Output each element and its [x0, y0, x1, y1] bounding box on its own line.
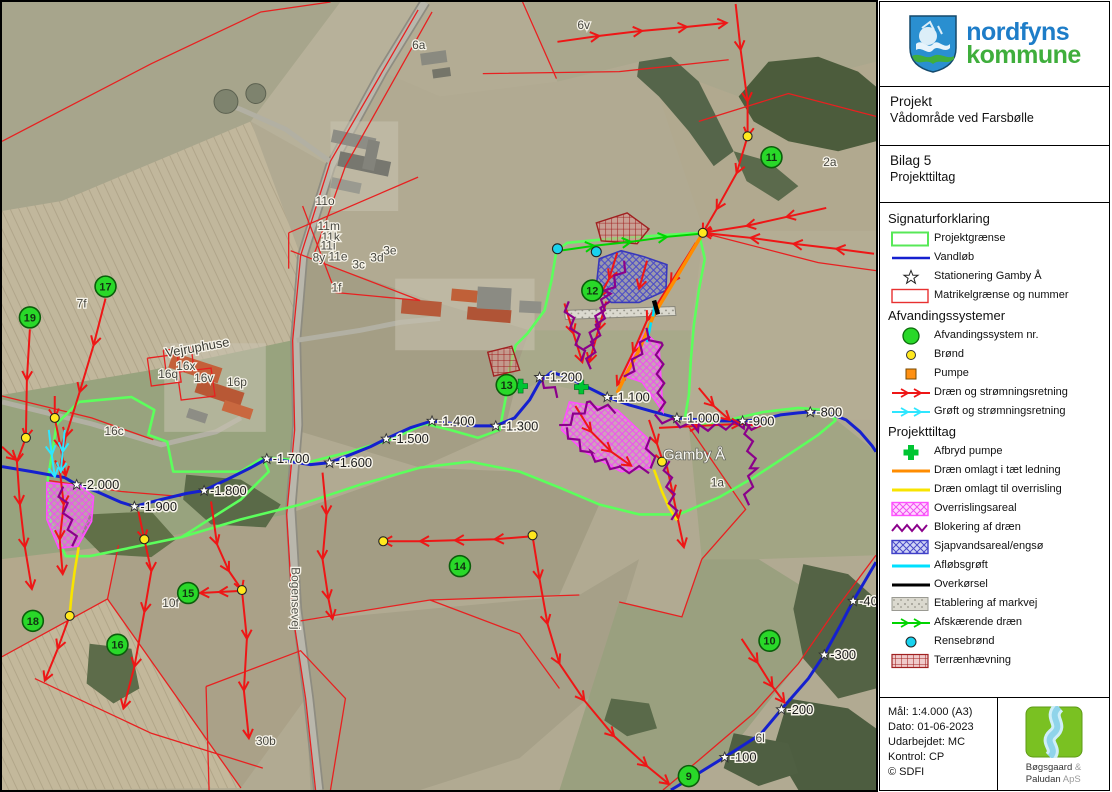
parcel-label: 1f	[331, 281, 342, 295]
station-label: -1.600	[335, 455, 372, 470]
municipality-coat-of-arms-icon	[908, 14, 958, 74]
drainage-system-number: 11	[766, 152, 778, 164]
parcel-label: 3e	[383, 244, 397, 258]
consultant-name: Bøgsgaard & Paludan ApS	[1026, 762, 1081, 786]
legend-item-label: Dræn omlagt i tæt ledning	[934, 464, 1061, 476]
legend-item-label: Etablering af markvej	[934, 597, 1037, 609]
station-label: -1.000	[683, 410, 720, 425]
station-label: -400	[859, 593, 876, 608]
legend-swatch-hatch-blue	[889, 538, 933, 556]
drainage-system-number: 10	[763, 636, 775, 648]
station-label: -300	[830, 647, 856, 662]
consultant-logo-box: Bøgsgaard & Paludan ApS	[998, 698, 1109, 790]
station-label: -1.100	[613, 389, 650, 404]
parcel-label: 6l	[756, 731, 765, 745]
bilag-box: Bilag 5 Projekttiltag	[879, 145, 1110, 203]
logo-line2: kommune	[966, 44, 1081, 67]
well-marker	[528, 531, 537, 540]
parcel-label: 6v	[577, 18, 590, 32]
legend-item-label: Stationering Gamby Å	[934, 270, 1042, 282]
legend-swatch-rect-outline-green	[889, 230, 933, 248]
legend-item: Dræn og strømningsretning	[888, 383, 1101, 402]
well-marker	[65, 611, 74, 620]
drainage-system-number: 16	[111, 640, 123, 652]
parcel-label: 16c	[105, 424, 124, 438]
legend-item: Overkørsel	[888, 575, 1101, 594]
legend-item: Matrikelgrænse og nummer	[888, 286, 1101, 305]
legend-swatch-arrow-green	[889, 614, 933, 632]
parcel-label: 3c	[352, 258, 365, 272]
drainage-system-number: 9	[686, 771, 692, 783]
parcel-label: 7f	[77, 296, 88, 310]
legend-item-label: Terrænhævning	[934, 654, 1011, 666]
parcel-label: 30b	[256, 734, 276, 748]
legend-item: Stationering Gamby Å	[888, 267, 1101, 286]
well-marker	[237, 586, 246, 595]
legend-item-label: Afløbsgrøft	[934, 559, 988, 571]
legend-swatch-plus-green	[889, 443, 933, 461]
metadata-line: © SDFI	[888, 766, 991, 778]
legend-swatch-line-orange	[889, 462, 933, 480]
legend-item: Afløbsgrøft	[888, 556, 1101, 575]
cleaning-well-marker	[552, 244, 562, 254]
title-panel: nordfyns kommune Projekt Vådområde ved F…	[878, 0, 1112, 792]
map-sheet: -2.000-1.900-1.800-1.700-1.600-1.500-1.4…	[0, 0, 1112, 792]
legend-item: Projektgrænse	[888, 229, 1101, 248]
info-box: Mål: 1:4.000 (A3)Dato: 01-06-2023Udarbej…	[879, 697, 1110, 791]
municipality-logo-text: nordfyns kommune	[966, 21, 1081, 67]
well-marker	[743, 132, 752, 141]
drainage-system-number: 14	[454, 561, 467, 573]
legend-swatch-rect-outline-red	[889, 287, 933, 305]
legend-section-title: Projekttiltag	[888, 424, 1101, 439]
station-label: -1.300	[502, 418, 539, 433]
legend-item: Dræn omlagt i tæt ledning	[888, 461, 1101, 480]
consultant-logo-icon	[1025, 706, 1083, 758]
legend-item: Grøft og strømningsretning	[888, 402, 1101, 421]
legend-item-label: Overkørsel	[934, 578, 988, 590]
cleaning-well-marker	[591, 247, 601, 257]
bilag-label: Bilag 5	[890, 153, 1099, 168]
well-marker	[698, 228, 707, 237]
map-metadata: Mål: 1:4.000 (A3)Dato: 01-06-2023Udarbej…	[880, 698, 998, 790]
metadata-line: Udarbejdet: MC	[888, 736, 991, 748]
legend-item-label: Grøft og strømningsretning	[934, 405, 1065, 417]
legend-section-title: Signaturforklaring	[888, 211, 1101, 226]
legend-swatch-line-black	[889, 576, 933, 594]
station-label: -100	[731, 750, 757, 765]
legend-swatch-line-cyan	[889, 557, 933, 575]
parcel-label: 11e	[329, 250, 348, 264]
legend-item-label: Vandløb	[934, 251, 974, 263]
legend-swatch-zigzag-purple	[889, 519, 933, 537]
legend-item: Overrislingsareal	[888, 499, 1101, 518]
drainage-system-number: 12	[586, 286, 598, 298]
station-label: -1.200	[546, 370, 583, 385]
legend-item-label: Afskærende dræn	[934, 616, 1022, 628]
legend-item-label: Afbryd pumpe	[934, 445, 1002, 457]
station-label: -800	[816, 404, 842, 419]
parcel-label: 16x	[176, 359, 195, 373]
drainage-system-number: 18	[27, 616, 39, 628]
legend-swatch-circle-green	[889, 327, 933, 345]
drainage-system-number: 13	[501, 380, 513, 392]
legend-swatch-grid-darkred	[889, 652, 933, 670]
legend-swatch-line-yellow	[889, 481, 933, 499]
parcel-label: 16q	[158, 367, 178, 381]
legend-item-label: Afvandingssystem nr.	[934, 329, 1039, 341]
legend-swatch-speckle-gray	[889, 595, 933, 613]
legend-swatch-square-orange	[889, 365, 933, 383]
station-label: -1.700	[273, 451, 310, 466]
station-label: -1.500	[392, 431, 429, 446]
parcel-label: 1a	[711, 476, 725, 490]
drainage-system-number: 15	[182, 588, 194, 600]
parcel-label: 16v	[194, 371, 213, 385]
metadata-line: Kontrol: CP	[888, 751, 991, 763]
drainage-system-number: 19	[24, 312, 36, 324]
parcel-label: 11o	[316, 194, 335, 208]
legend-item: Afvandingssystem nr.	[888, 326, 1101, 345]
station-label: -1.900	[140, 499, 177, 514]
station-label: -2.000	[83, 477, 120, 492]
well-marker	[379, 537, 388, 546]
place-label: Bogensevej	[289, 567, 303, 629]
legend-swatch-hatch-pink	[889, 500, 933, 518]
station-label: -1.800	[210, 483, 247, 498]
map-canvas: -2.000-1.900-1.800-1.700-1.600-1.500-1.4…	[0, 0, 878, 792]
legend-item: Sjapvandsareal/engsø	[888, 537, 1101, 556]
parcel-label: 10f	[162, 596, 179, 610]
legend-swatch-circle-yellow	[889, 346, 933, 364]
station-label: -900	[749, 413, 775, 428]
project-label: Projekt	[890, 94, 1099, 109]
metadata-line: Mål: 1:4.000 (A3)	[888, 706, 991, 718]
legend-item: Etablering af markvej	[888, 594, 1101, 613]
legend-item-label: Blokering af dræn	[934, 521, 1021, 533]
municipality-logo-box: nordfyns kommune	[879, 1, 1110, 87]
project-box: Projekt Vådområde ved Farsbølle	[879, 86, 1110, 146]
legend-item: Terrænhævning	[888, 651, 1101, 670]
station-label: -1.400	[438, 413, 475, 428]
legend-swatch-star	[889, 268, 933, 286]
legend-item: Pumpe	[888, 364, 1101, 383]
legend-item-label: Projektgrænse	[934, 232, 1006, 244]
legend-item: Vandløb	[888, 248, 1101, 267]
well-marker	[50, 413, 59, 422]
legend-item-label: Sjapvandsareal/engsø	[934, 540, 1043, 552]
legend-item-label: Pumpe	[934, 367, 969, 379]
legend-item-label: Overrislingsareal	[934, 502, 1017, 514]
legend-item: Brønd	[888, 345, 1101, 364]
map-svg: -2.000-1.900-1.800-1.700-1.600-1.500-1.4…	[2, 2, 876, 790]
station-label: -200	[787, 702, 813, 717]
legend-item: Dræn omlagt til overrisling	[888, 480, 1101, 499]
legend-item: Blokering af dræn	[888, 518, 1101, 537]
legend-item-label: Matrikelgrænse og nummer	[934, 289, 1069, 301]
parcel-label: 6a	[412, 38, 426, 52]
legend-item-label: Dræn og strømningsretning	[934, 386, 1068, 398]
legend-swatch-arrow-cyan	[889, 403, 933, 421]
legend-section-title: Afvandingssystemer	[888, 308, 1101, 323]
place-label: Gamby Å	[663, 447, 725, 464]
metadata-line: Dato: 01-06-2023	[888, 721, 991, 733]
parcel-label: 16p	[227, 375, 247, 389]
well-marker	[21, 433, 30, 442]
legend-swatch-line-blue	[889, 249, 933, 267]
well-marker	[140, 535, 149, 544]
parcel-label: 2a	[823, 155, 837, 169]
legend-swatch-arrow-red	[889, 384, 933, 402]
drainage-system-number: 17	[99, 282, 111, 294]
project-value: Vådområde ved Farsbølle	[890, 111, 1099, 125]
legend-item-label: Dræn omlagt til overrisling	[934, 483, 1062, 495]
legend-box: SignaturforklaringProjektgrænseVandløbSt…	[879, 202, 1110, 698]
bilag-value: Projekttiltag	[890, 170, 1099, 184]
parcel-label: 8y	[313, 251, 326, 265]
legend-item-label: Brønd	[934, 348, 964, 360]
parcel-label: 3d	[370, 251, 383, 265]
legend-swatch-circle-cyan	[889, 633, 933, 651]
legend-item-label: Rensebrønd	[934, 635, 995, 647]
legend-item: Afbryd pumpe	[888, 442, 1101, 461]
legend-item: Rensebrønd	[888, 632, 1101, 651]
legend-item: Afskærende dræn	[888, 613, 1101, 632]
